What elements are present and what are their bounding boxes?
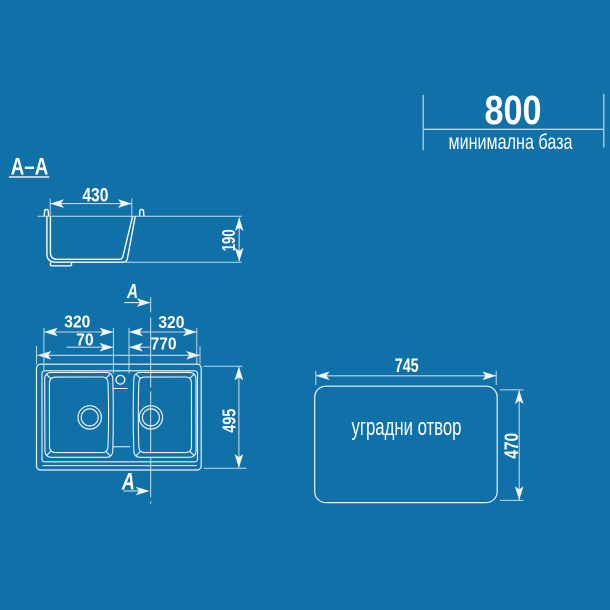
- svg-text:минимална база: минимална база: [449, 131, 573, 154]
- svg-text:320: 320: [64, 311, 90, 331]
- svg-text:70: 70: [76, 329, 94, 349]
- svg-text:190: 190: [219, 229, 239, 251]
- svg-text:745: 745: [395, 355, 419, 377]
- svg-text:470: 470: [502, 433, 523, 459]
- svg-text:800: 800: [485, 87, 542, 133]
- svg-text:495: 495: [219, 409, 239, 433]
- svg-text:уградни отвор: уградни отвор: [352, 414, 462, 441]
- svg-text:A: A: [126, 280, 138, 303]
- svg-text:770: 770: [151, 334, 177, 354]
- svg-text:320: 320: [158, 312, 184, 332]
